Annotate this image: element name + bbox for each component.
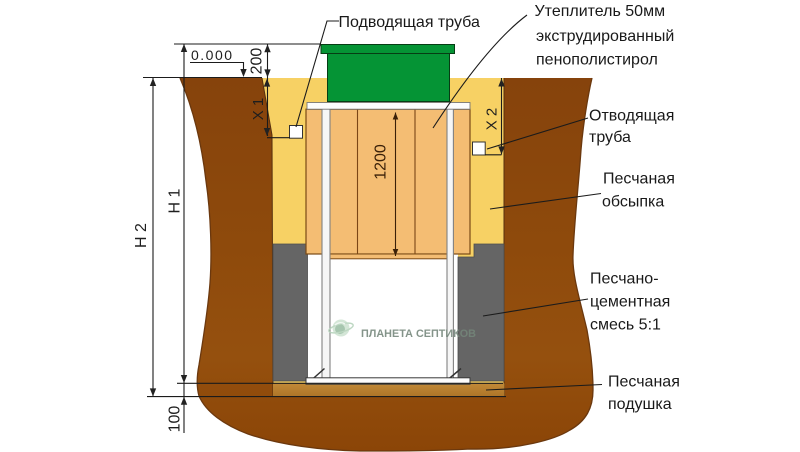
svg-text:200: 200 bbox=[249, 48, 266, 75]
svg-text:X 1: X 1 bbox=[250, 98, 267, 121]
svg-text:Песчано-: Песчано- bbox=[590, 271, 659, 288]
svg-text:экструдированный: экструдированный bbox=[536, 28, 674, 45]
svg-text:Песчаная: Песчаная bbox=[608, 374, 680, 391]
svg-text:1200: 1200 bbox=[373, 144, 390, 180]
svg-text:труба: труба bbox=[589, 129, 631, 146]
svg-text:0.000: 0.000 bbox=[191, 47, 234, 63]
svg-text:обсыпка: обсыпка bbox=[602, 194, 664, 211]
svg-text:цементная: цементная bbox=[590, 294, 670, 311]
svg-text:ПЛАНЕТА СЕПТИКОВ: ПЛАНЕТА СЕПТИКОВ bbox=[361, 328, 476, 340]
svg-text:100: 100 bbox=[167, 406, 184, 433]
svg-text:Песчаная: Песчаная bbox=[603, 171, 675, 188]
svg-text:Подводящая труба: Подводящая труба bbox=[339, 14, 480, 31]
svg-text:X 2: X 2 bbox=[484, 108, 501, 131]
svg-text:H 1: H 1 bbox=[167, 188, 184, 213]
svg-text:смесь 5:1: смесь 5:1 bbox=[590, 317, 661, 334]
svg-text:Отводящая: Отводящая bbox=[589, 108, 674, 125]
svg-text:H 2: H 2 bbox=[133, 223, 150, 248]
svg-text:подушка: подушка bbox=[608, 396, 672, 413]
svg-text:пенополистирол: пенополистирол bbox=[536, 52, 658, 69]
svg-text:Утеплитель 50мм: Утеплитель 50мм bbox=[535, 3, 666, 20]
